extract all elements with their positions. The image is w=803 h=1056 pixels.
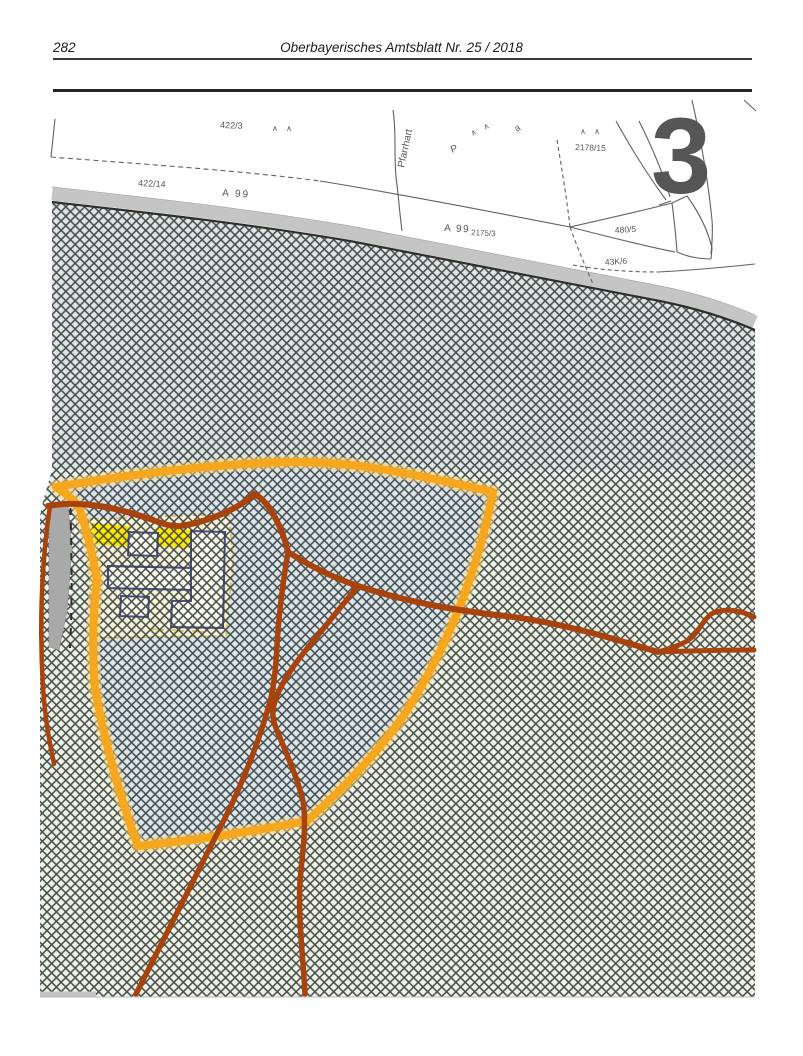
street-name-label: Pfarrhart [396, 128, 415, 169]
figure-number: 3 [651, 95, 711, 216]
parcel-label: 43K/6 [605, 256, 628, 267]
bottom-gray-sliver [40, 992, 96, 998]
autobahn-label: A 99 [444, 223, 471, 235]
letter-label: P [449, 143, 459, 156]
road-fork-lower [658, 650, 754, 652]
parcel-label: 480/5 [615, 224, 637, 235]
parcel-label: 422/3 [220, 120, 243, 131]
parcel-label: 422/14 [138, 178, 166, 189]
pfarrhart-line [393, 110, 402, 231]
tree-symbol-icon: ∧ ∧ [272, 124, 295, 133]
tree-symbol-icon: ∧ ∧ [580, 127, 603, 136]
parcel-label: 2178/15 [575, 142, 606, 153]
autobahn-label: A 99 [222, 188, 251, 200]
parcel-label: 2175/3 [471, 228, 496, 238]
tree-symbol-icon: ∧ ∧ [469, 120, 494, 138]
gazette-page: { "header": { "page_number": "282", "tit… [0, 0, 803, 1056]
cadastral-map: 422/3 422/14 A 99 Pfarrhart P a 2178/15 … [0, 0, 803, 1056]
letter-label: a [512, 123, 522, 134]
left-border [51, 119, 55, 157]
